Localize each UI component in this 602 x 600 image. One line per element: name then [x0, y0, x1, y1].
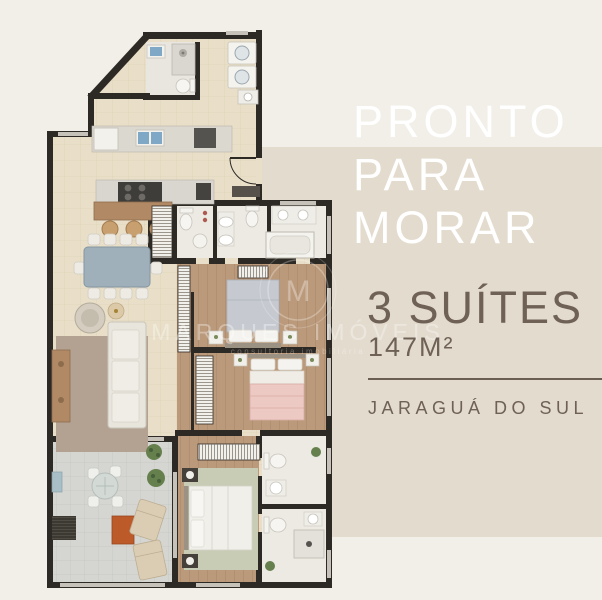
watermark-tagline: consultoria imobiliária: [231, 347, 365, 356]
location-label: JARAGUÁ DO SUL: [368, 398, 588, 419]
headline-line-2: PARA: [353, 148, 569, 201]
suites-count: 3 SUÍTES: [367, 282, 583, 334]
divider-line: [368, 378, 602, 380]
promo-image: { "page": { "background_color": "#f2efe8…: [0, 0, 602, 600]
headline-line-1: PRONTO: [353, 95, 569, 148]
headline: PRONTO PARA MORAR: [353, 95, 569, 254]
headline-line-3: MORAR: [353, 201, 569, 254]
watermark-monogram: M: [286, 275, 311, 308]
area-size: 147M²: [368, 332, 455, 363]
